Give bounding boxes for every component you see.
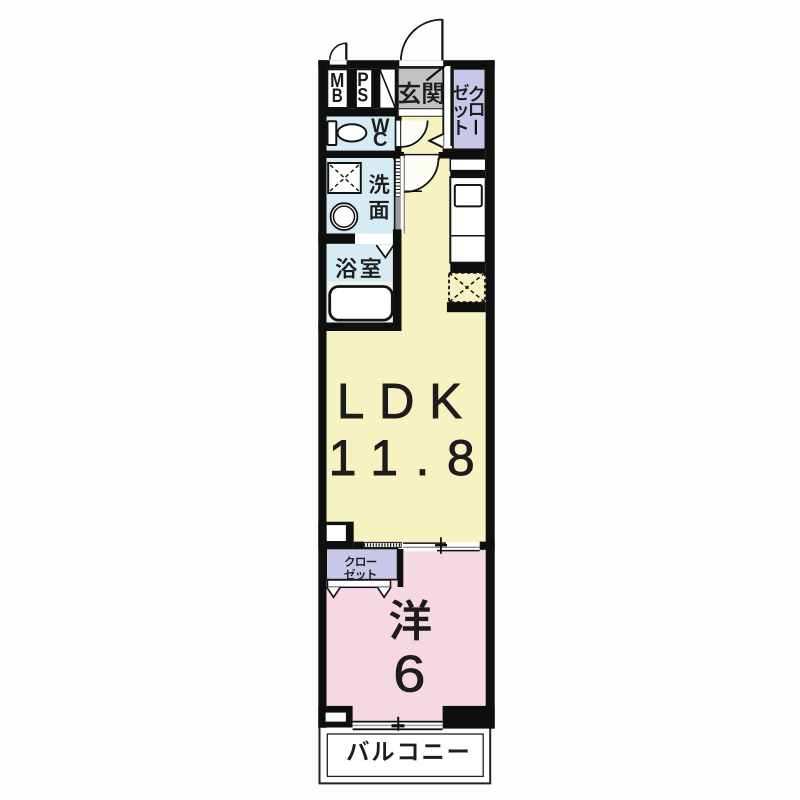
svg-text:S: S (357, 85, 368, 106)
svg-text:11.8: 11.8 (329, 430, 493, 486)
svg-text:B: B (332, 86, 343, 107)
svg-text:LDK: LDK (337, 375, 477, 429)
svg-text:C: C (373, 129, 388, 151)
svg-text:6: 6 (393, 644, 425, 702)
